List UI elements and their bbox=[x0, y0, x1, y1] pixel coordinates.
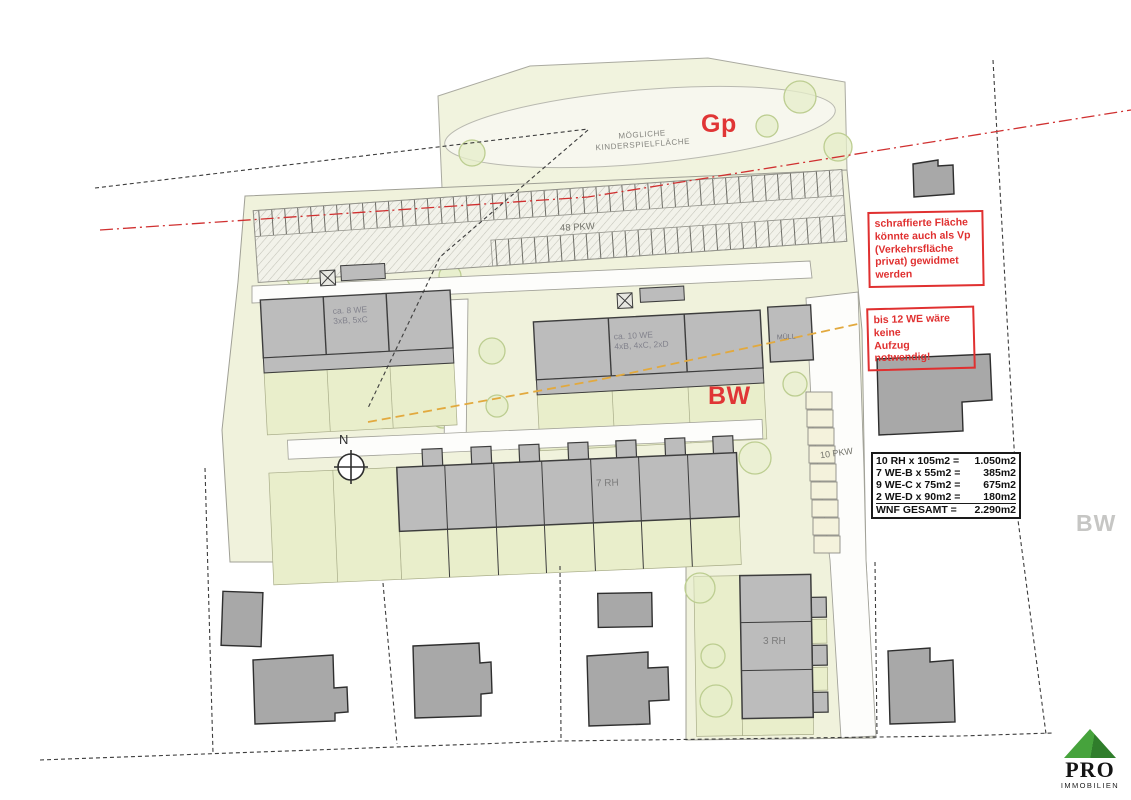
summary-row: 2 WE-D x 90m2 =180m2 bbox=[876, 491, 1016, 504]
lift-note-box: bis 12 WE wäre keine Aufzug notwendig! bbox=[866, 306, 976, 372]
rowhouse-7-label: 7 RH bbox=[596, 478, 619, 491]
north-label: N bbox=[339, 432, 348, 448]
logo-roof-icon bbox=[1064, 729, 1116, 758]
pro-immobilien-logo: PRO IMMOBILIEN bbox=[1050, 729, 1130, 791]
bw-label-right: BW bbox=[1076, 510, 1116, 537]
summary-total-row: WNF GESAMT =2.290m2 bbox=[876, 504, 1016, 516]
area-summary-table: 10 RH x 105m2 =1.050m2 7 WE-B x 55m2 =38… bbox=[871, 452, 1021, 519]
logo-subtitle: IMMOBILIEN bbox=[1061, 781, 1119, 791]
logo-name: PRO bbox=[1065, 759, 1114, 781]
gp-label: Gp bbox=[701, 110, 737, 139]
site-plan: MÖGLICHE KINDERSPIELFLÄCHE Gp 48 PKW ca.… bbox=[0, 0, 1131, 800]
trafo-icon bbox=[617, 293, 633, 309]
muell-label: MÜLL bbox=[777, 334, 796, 343]
site-plan-drawing bbox=[0, 0, 1131, 800]
bw-label: BW bbox=[708, 382, 751, 411]
apt-mid-label: ca. 10 WE 4xB, 4xC, 2xD bbox=[614, 329, 669, 352]
summary-row: 7 WE-B x 55m2 =385m2 bbox=[876, 467, 1016, 479]
vp-note-box: schraffierte Fläche könnte auch als Vp (… bbox=[867, 210, 984, 288]
summary-row: 10 RH x 105m2 =1.050m2 bbox=[876, 455, 1016, 467]
rowhouse-3-label: 3 RH bbox=[763, 636, 786, 648]
trafo-icon bbox=[320, 270, 336, 286]
parking-48-label: 48 PKW bbox=[560, 221, 595, 234]
apt-left-label: ca. 8 WE 3xB, 5xC bbox=[332, 304, 368, 326]
summary-row: 9 WE-C x 75m2 =675m2 bbox=[876, 479, 1016, 491]
